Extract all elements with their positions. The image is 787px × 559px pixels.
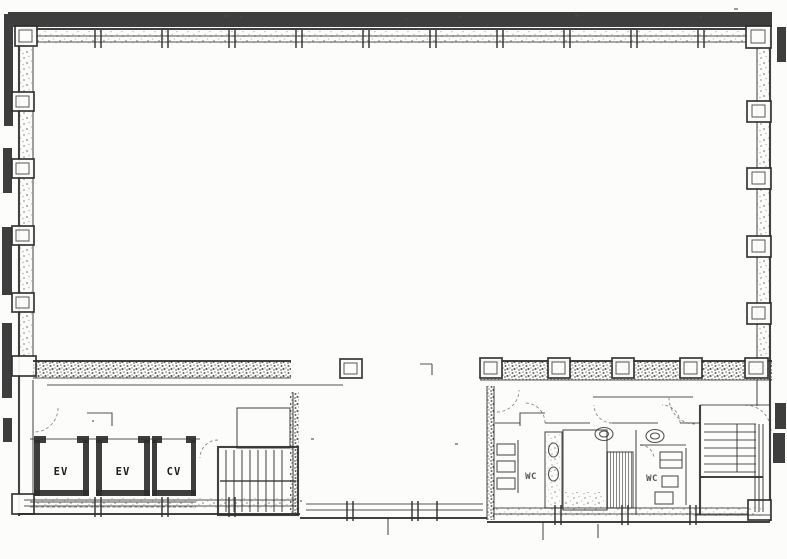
scan-artifacts [2,8,787,502]
column [747,101,771,122]
column [747,168,771,189]
wc-stall-fixture [497,461,515,472]
elevator-3-label: CV [167,466,182,478]
elevator-2: EV [96,436,150,496]
wc-stall-fixture [497,444,515,455]
wc-fixture [655,492,673,504]
core-west-wall [487,386,494,520]
column [15,26,37,46]
elevator-2-label: EV [116,466,131,478]
column [680,358,702,378]
scan-band-right-3 [773,433,785,463]
open-office-area [40,50,750,358]
sink-fixture [646,430,664,443]
column [12,293,34,312]
door-swing [34,408,58,432]
scan-band-top [8,12,772,27]
column [12,159,34,178]
service-shaft [607,430,636,515]
elevator-1: EV [34,436,89,496]
column [480,358,502,378]
door-swings [525,403,680,423]
elevator-1-label: EV [54,466,69,478]
wall-bracket [87,413,112,426]
scan-band-right-1 [777,27,786,62]
wc-fixture [662,476,678,487]
floor-plan-drawing: EV EV CV [0,0,787,559]
core-wall [33,358,772,397]
scan-noise-dots [92,8,787,502]
column [747,236,771,257]
scan-band-right-2 [775,403,786,429]
column [12,226,34,245]
stair-rails [755,424,763,512]
scan-band-left-5 [3,418,12,442]
service-room [563,430,607,510]
door-swing [497,390,519,412]
wall-bracket [520,413,545,426]
column [12,356,36,376]
outer-walls [12,26,771,540]
duct-shaft [607,452,633,508]
door-swings [669,398,771,431]
elevator-bank: EV EV CV [30,436,200,507]
column [12,92,34,111]
left-wall [12,26,37,516]
stairwell-left [200,392,299,515]
door-swing [640,445,654,459]
stair-shaft-wall [290,392,299,515]
door-swing [200,440,218,458]
column [548,358,570,378]
elevator-lobby [34,408,112,432]
column [612,358,634,378]
column [746,26,771,48]
core-wall-left-segment [33,361,291,378]
right-core: WC WC [487,386,771,520]
wc-left-room: WC [497,432,562,508]
top-wall [20,29,762,48]
scanned-floor-plan-page: EV EV CV [0,0,787,559]
column [340,359,362,378]
wc-left-label: WC [525,472,537,482]
scan-band-left-3 [2,227,12,295]
wc-right-label: WC [646,474,658,484]
stairwell-right [669,398,771,515]
column [745,358,768,378]
wc-right-room: WC [640,445,686,505]
scan-band-left-4 [2,323,12,398]
elevator-3: CV [152,436,196,496]
column [747,303,771,324]
core-wall-tick [420,364,432,375]
wc-stall-fixture [497,478,515,489]
scan-band-left-2 [3,148,12,193]
stair-landing [237,408,290,448]
sink-basin [651,433,660,439]
stair-treads [704,424,756,472]
